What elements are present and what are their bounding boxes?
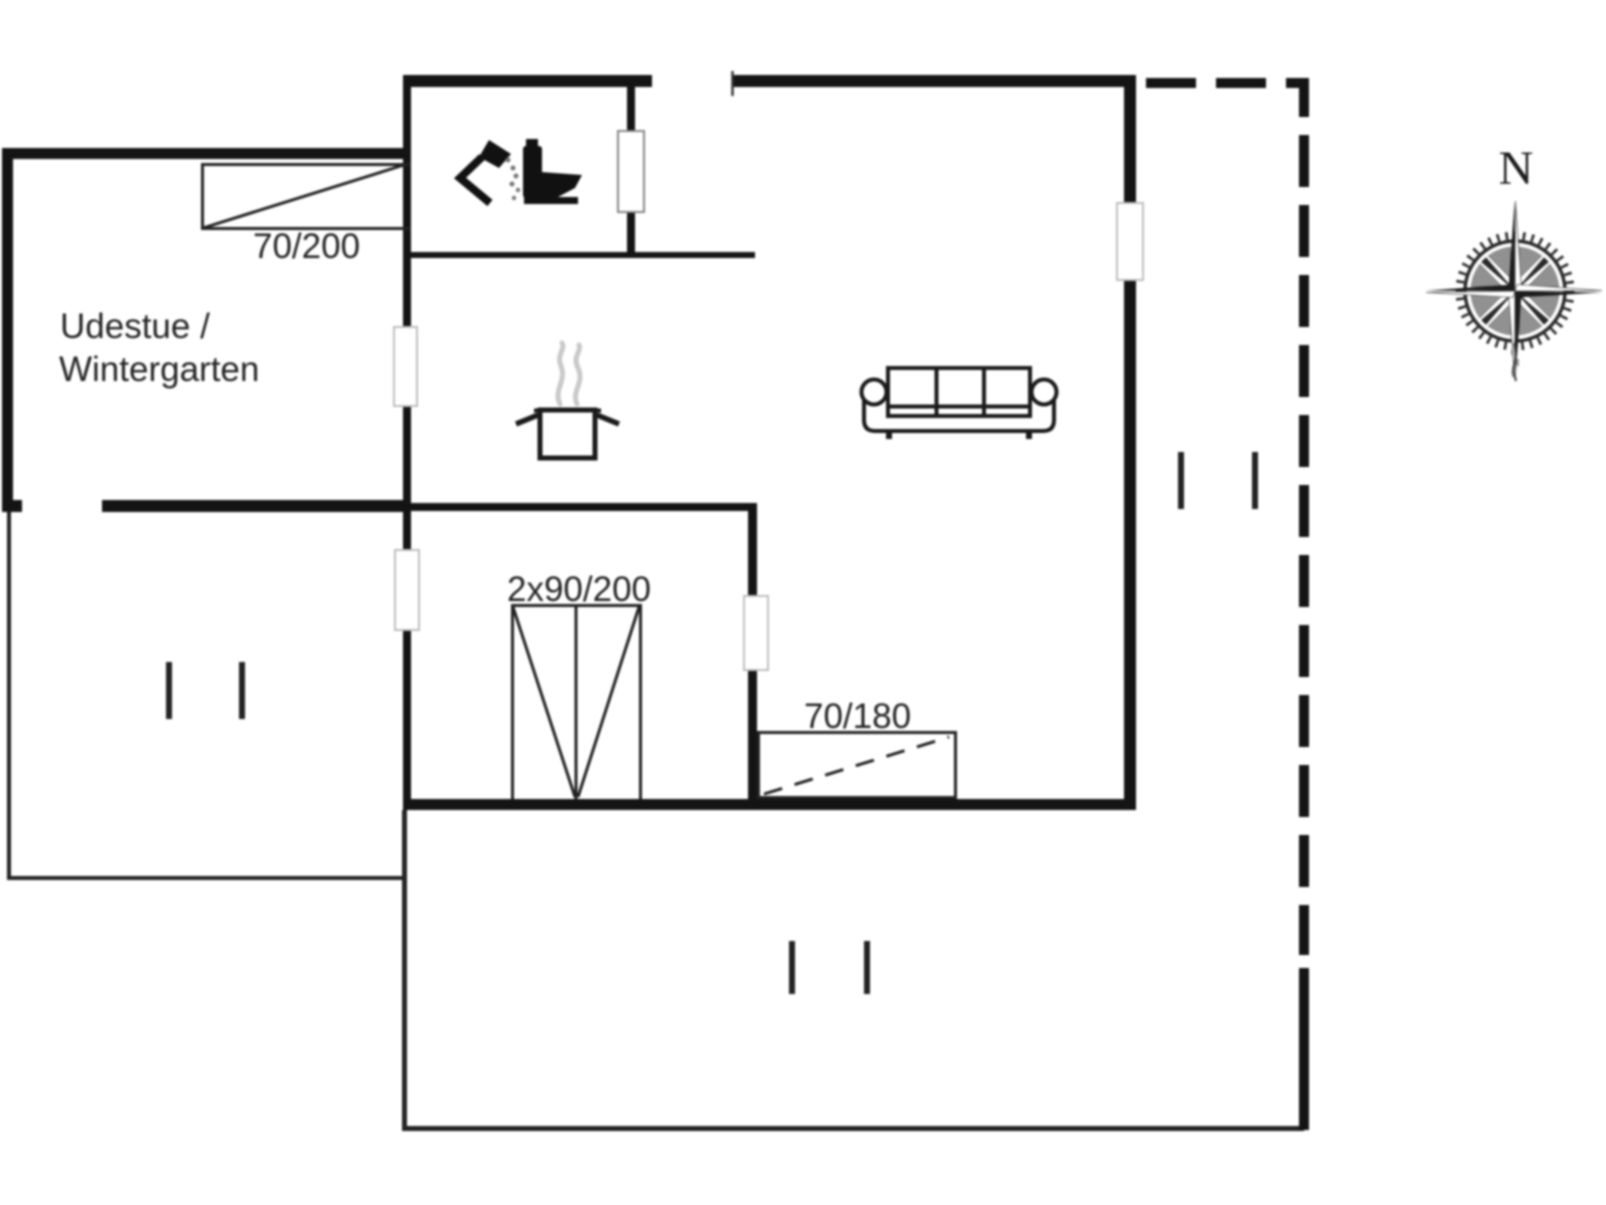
svg-text:N: N <box>1499 142 1534 195</box>
svg-text:Udestue /: Udestue / <box>60 307 210 346</box>
svg-text:Wintergarten: Wintergarten <box>59 350 259 389</box>
svg-text:70/200: 70/200 <box>253 227 360 266</box>
svg-text:2x90/200: 2x90/200 <box>507 570 651 609</box>
svg-text:70/180: 70/180 <box>804 697 911 736</box>
